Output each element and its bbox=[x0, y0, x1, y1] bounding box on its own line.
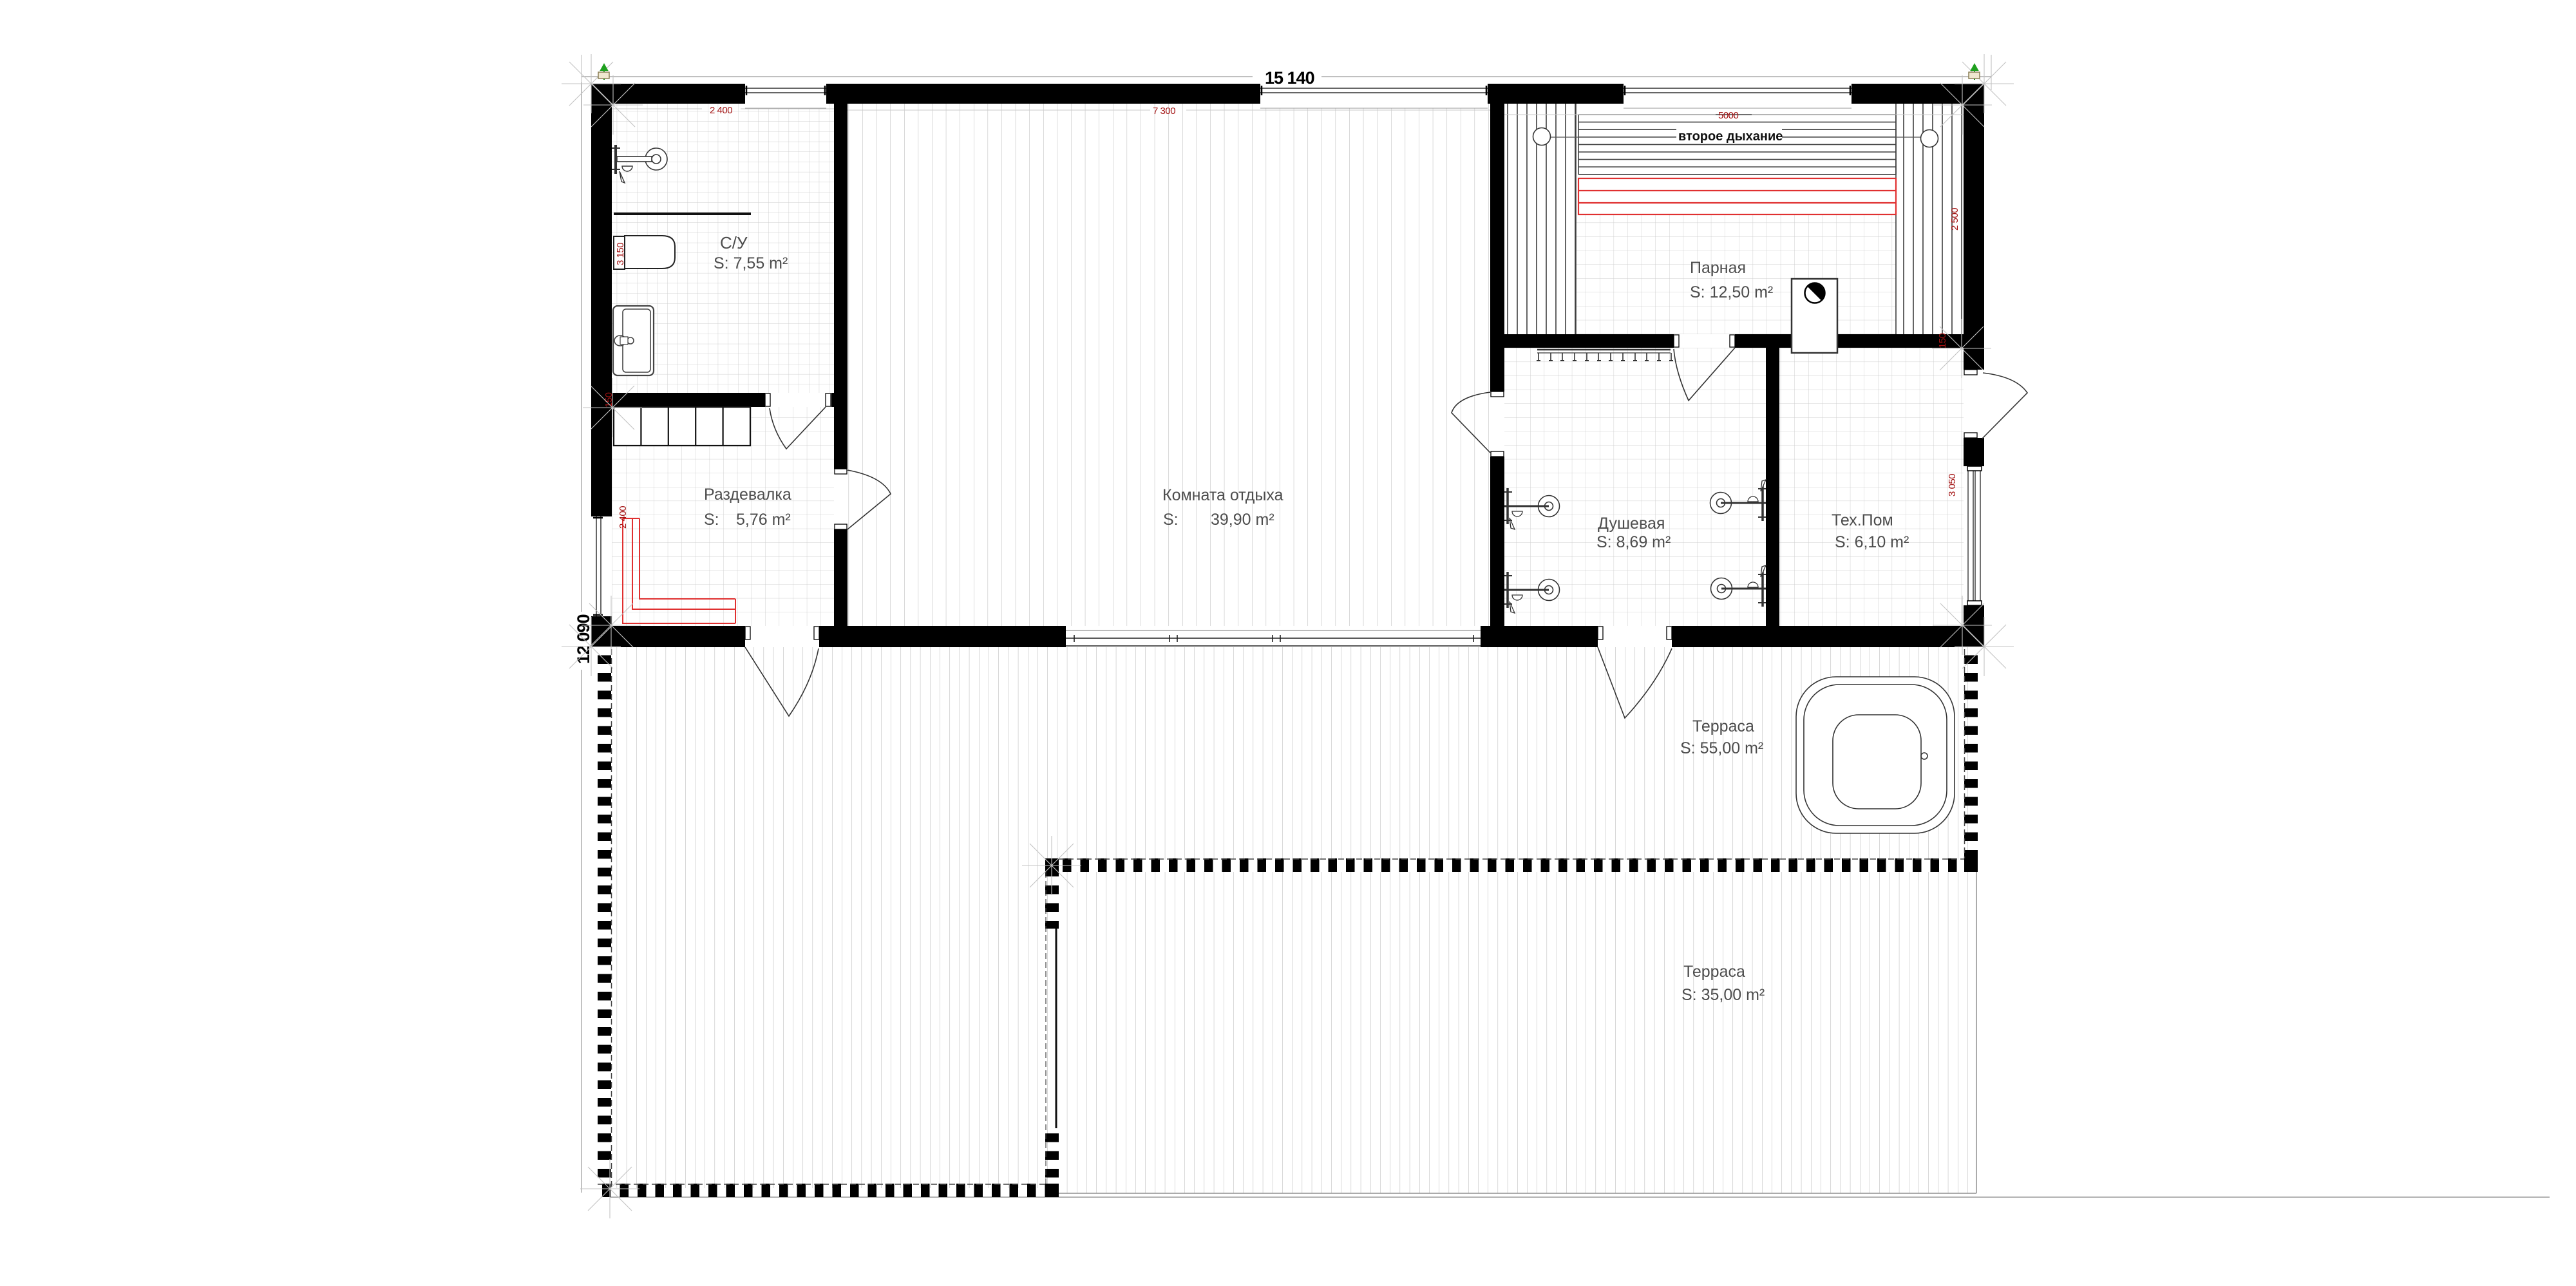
svg-text:S: 35,00 m²: S: 35,00 m² bbox=[1681, 986, 1765, 1004]
svg-text:S: 55,00 m²: S: 55,00 m² bbox=[1680, 739, 1763, 757]
svg-text:2 400: 2 400 bbox=[710, 105, 732, 116]
svg-text:39,90 m²: 39,90 m² bbox=[1211, 511, 1274, 529]
svg-text:S: 8,69 m²: S: 8,69 m² bbox=[1596, 533, 1671, 551]
svg-text:3 150: 3 150 bbox=[615, 243, 626, 265]
svg-text:Душевая: Душевая bbox=[1598, 515, 1665, 533]
svg-text:Терраса: Терраса bbox=[1692, 717, 1754, 735]
svg-text:Раздевалка: Раздевалка bbox=[704, 486, 791, 504]
svg-text:2 400: 2 400 bbox=[618, 506, 629, 529]
svg-text:Парная: Парная bbox=[1690, 259, 1746, 277]
svg-text:С/У: С/У bbox=[720, 233, 748, 252]
svg-text:3 050: 3 050 bbox=[1947, 474, 1958, 496]
svg-text:S:: S: bbox=[1163, 511, 1179, 529]
svg-text:S:: S: bbox=[704, 511, 719, 529]
svg-text:2 500: 2 500 bbox=[1949, 208, 1960, 231]
svg-text:15 140: 15 140 bbox=[1265, 68, 1314, 88]
svg-text:S: 12,50 m²: S: 12,50 m² bbox=[1690, 283, 1773, 301]
svg-text:Тех.Пом: Тех.Пом bbox=[1832, 511, 1893, 529]
svg-text:второе дыхание: второе дыхание bbox=[1678, 129, 1783, 144]
svg-text:Терраса: Терраса bbox=[1683, 963, 1745, 981]
svg-text:S: 6,10 m²: S: 6,10 m² bbox=[1835, 533, 1909, 551]
svg-text:5,76 m²: 5,76 m² bbox=[736, 511, 791, 529]
svg-text:S: 7,55 m²: S: 7,55 m² bbox=[714, 254, 788, 272]
svg-text:150: 150 bbox=[1937, 333, 1948, 348]
svg-text:5000: 5000 bbox=[1718, 110, 1739, 121]
svg-text:7 300: 7 300 bbox=[1153, 106, 1175, 117]
svg-text:Комната отдыха: Комната отдыха bbox=[1162, 486, 1283, 504]
